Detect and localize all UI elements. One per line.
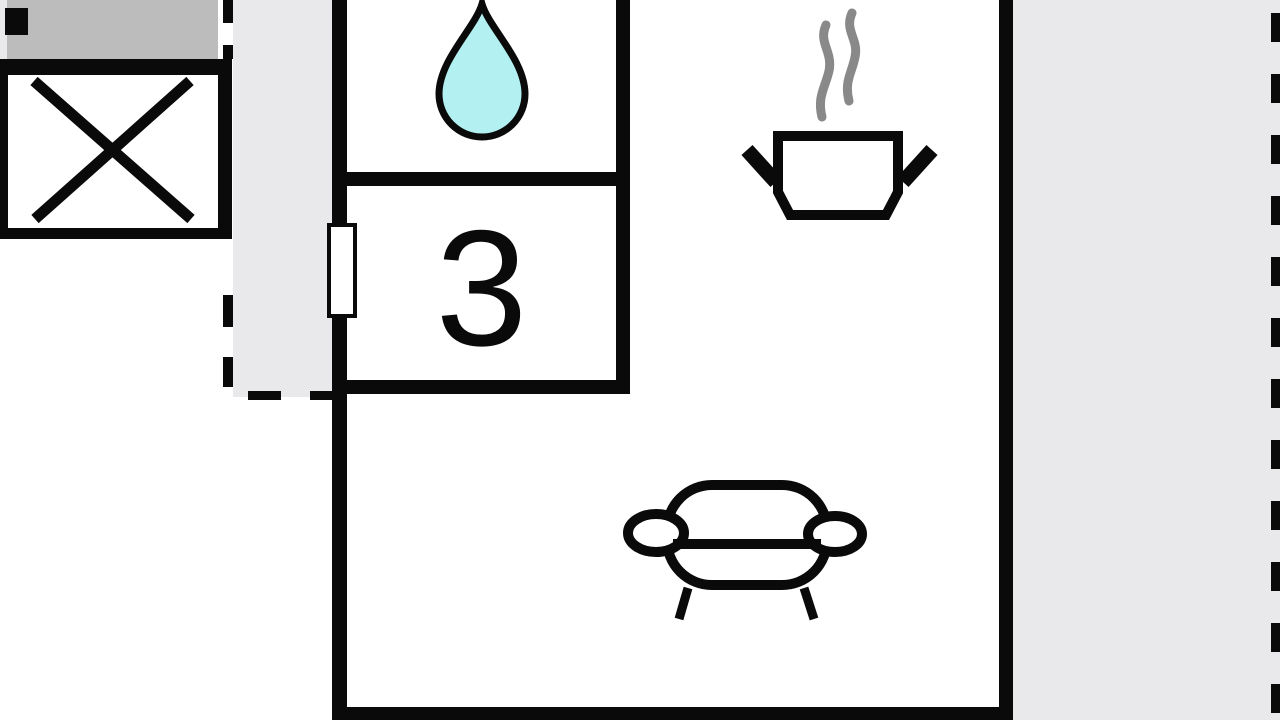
corridor-dash — [310, 391, 332, 400]
corridor-dash — [248, 391, 281, 400]
wall-left — [332, 0, 347, 720]
wall-right — [999, 0, 1013, 720]
right-boundary-dashed-line — [1271, 13, 1280, 720]
wall-bedroom-bottom — [332, 380, 630, 394]
corridor-dash — [223, 0, 233, 23]
cooking-pot-icon — [740, 8, 940, 223]
room-bathroom — [347, 0, 616, 172]
entry-corridor-area — [233, 0, 332, 397]
wall-bathroom-bedroom-divider — [332, 172, 630, 186]
terrace-area — [7, 0, 218, 59]
floor-plan: 3 — [0, 0, 1280, 720]
corridor-dash — [223, 357, 233, 387]
corridor-dash — [223, 45, 233, 59]
crossed-box-icon — [8, 75, 218, 228]
steam-icon — [820, 13, 855, 117]
elevator-shaft-box — [0, 59, 232, 239]
corridor-dash — [223, 295, 233, 327]
water-drop-icon — [431, 0, 533, 145]
wall-bottom — [332, 707, 1013, 720]
room-number: 3 — [436, 206, 528, 371]
terrace-boundary-dash — [5, 8, 28, 35]
right-outside-area — [1013, 0, 1280, 720]
sofa-icon — [615, 470, 875, 625]
room-bedroom: 3 — [347, 186, 616, 380]
wall-interior-vertical — [616, 0, 630, 394]
